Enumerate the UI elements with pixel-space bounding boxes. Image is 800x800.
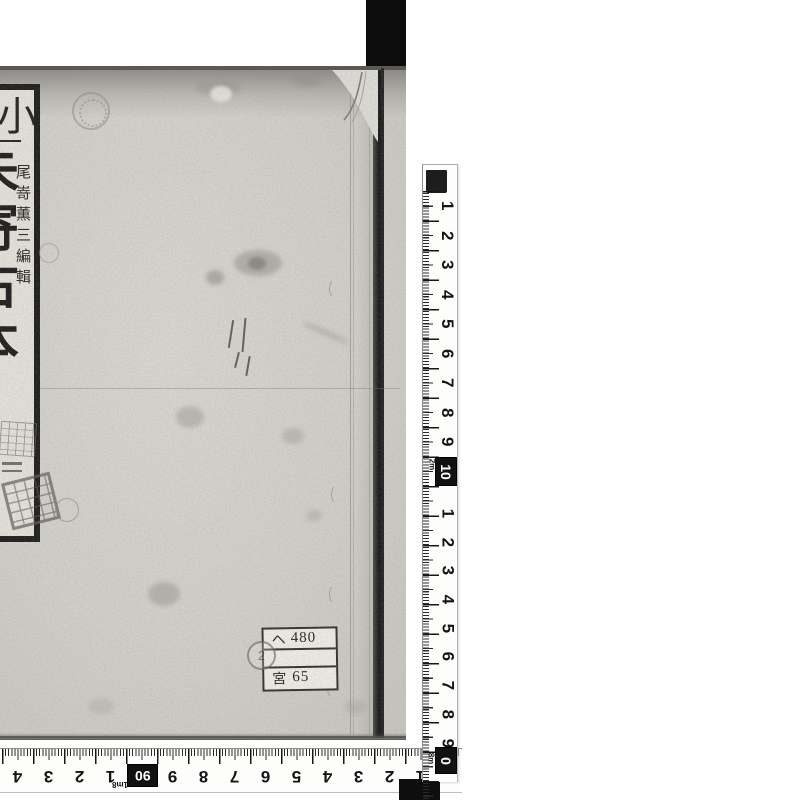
ruler-digit-group: 4321 (2, 765, 126, 787)
call-location-kanji: 宮 (272, 668, 286, 688)
stain-spot (282, 428, 304, 444)
double-stroke-mark (2, 462, 22, 476)
ruler-digit: 4 (432, 283, 462, 305)
binding-thread-loop (329, 278, 344, 299)
ruler-digit: 3 (33, 765, 64, 787)
stroke (2, 470, 22, 473)
stroke (2, 462, 22, 465)
ruler-digit-group: 123456789 (436, 191, 458, 457)
ruler-digit: 2 (432, 224, 462, 246)
ruler-digit: 1 (432, 195, 462, 217)
horizontal-ruler: 4321 90 1m8 987654321 (0, 748, 462, 793)
ruler-digit: 5 (281, 765, 312, 787)
meter-label: 1m8 (112, 780, 128, 789)
ruler-digit: 2 (433, 531, 462, 553)
decimeter-value: 90 (135, 768, 151, 784)
ruler-digit: 8 (432, 401, 462, 423)
ruler-digit: 3 (343, 765, 374, 787)
stain-spot (206, 270, 224, 285)
small-square-seal (0, 421, 37, 457)
circled-number-stamp: 2 (247, 641, 276, 670)
book-spine-edge-shadow (373, 70, 381, 738)
ruler-digit: 8 (188, 765, 219, 787)
title-slip-editor-column: 尾嵜薫三編輯 (12, 164, 33, 400)
stain-spot (306, 510, 322, 521)
ruler-digit: 7 (432, 372, 462, 394)
ruler-digit: 3 (432, 254, 462, 276)
page-curl-corner (328, 68, 380, 146)
ruler-digit: 6 (432, 342, 462, 364)
ruler-digit: 7 (219, 765, 250, 787)
horizontal-crease (0, 388, 400, 389)
scanned-book-page: 小 朱寄古本 尾嵜薫三編輯 ヘ 480 (0, 0, 800, 800)
stain-spot (176, 406, 204, 428)
ruler-digit: 1 (433, 502, 462, 524)
round-library-seal (72, 92, 110, 130)
call-number-row-1: ヘ 480 (263, 628, 335, 650)
stain-spot (248, 257, 266, 270)
ring-mark (39, 243, 59, 263)
cover-crease-line (350, 72, 351, 734)
ruler-digit: 9 (432, 431, 462, 453)
tape-end-clip-icon (426, 168, 447, 193)
call-class-number: 480 (290, 630, 316, 647)
meter-label: 8m (426, 753, 435, 765)
ruler-digit: 3 (433, 560, 462, 582)
ruler-digit: 2 (64, 765, 95, 787)
cover-crease-line (353, 72, 354, 734)
ruler-digit-group: 987654321 (157, 765, 436, 787)
scanner-band-top (366, 0, 406, 74)
vertical-ruler: 123456789 10 2m 123456789 0 8m (422, 164, 458, 782)
title-slip-divider (0, 140, 21, 142)
stain-spot (292, 74, 322, 87)
binding-thread-loop (329, 584, 344, 605)
stain-spot (344, 700, 366, 714)
ruler-decimeter-box: 90 1m8 (127, 764, 158, 787)
ruler-digit: 6 (250, 765, 281, 787)
ruler-digit: 8 (433, 703, 462, 725)
stain-spot (88, 698, 114, 714)
ruler-digit: 5 (433, 617, 462, 639)
ring-mark (55, 498, 79, 522)
light-patch (210, 86, 232, 102)
stain-spot (148, 582, 180, 606)
book-cover (0, 66, 406, 740)
ruler-digit: 4 (312, 765, 343, 787)
page-curl-drawing (328, 68, 380, 146)
round-seal-pattern (79, 99, 107, 127)
ruler-cm-ticks (2, 749, 460, 764)
binding-thread-loop (331, 484, 346, 505)
ruler-decimeter-box: 0 8m (435, 747, 457, 774)
ruler-digit: 5 (432, 313, 462, 335)
meter-label: 2m (427, 459, 436, 471)
ruler-digit: 9 (157, 765, 188, 787)
book-bottom-line (0, 736, 406, 738)
cover-fold-line (369, 72, 370, 734)
ruler-digit: 4 (2, 765, 33, 787)
book-edge-line (381, 68, 384, 738)
ruler-decimeter-box: 10 2m (435, 457, 457, 486)
call-number-row-3: 宮 65 (264, 667, 336, 687)
decimeter-value: 0 (438, 757, 454, 765)
call-class-kana: ヘ (271, 629, 285, 649)
title-slip-header-char: 小 (0, 95, 37, 139)
decimeter-value: 10 (438, 464, 454, 480)
ruler-digit-group: 123456789 (436, 499, 458, 757)
ruler-digit: 4 (433, 588, 462, 610)
ruler-digit: 7 (433, 674, 462, 696)
ruler-digit: 6 (433, 646, 462, 668)
call-item-number: 65 (292, 669, 309, 686)
